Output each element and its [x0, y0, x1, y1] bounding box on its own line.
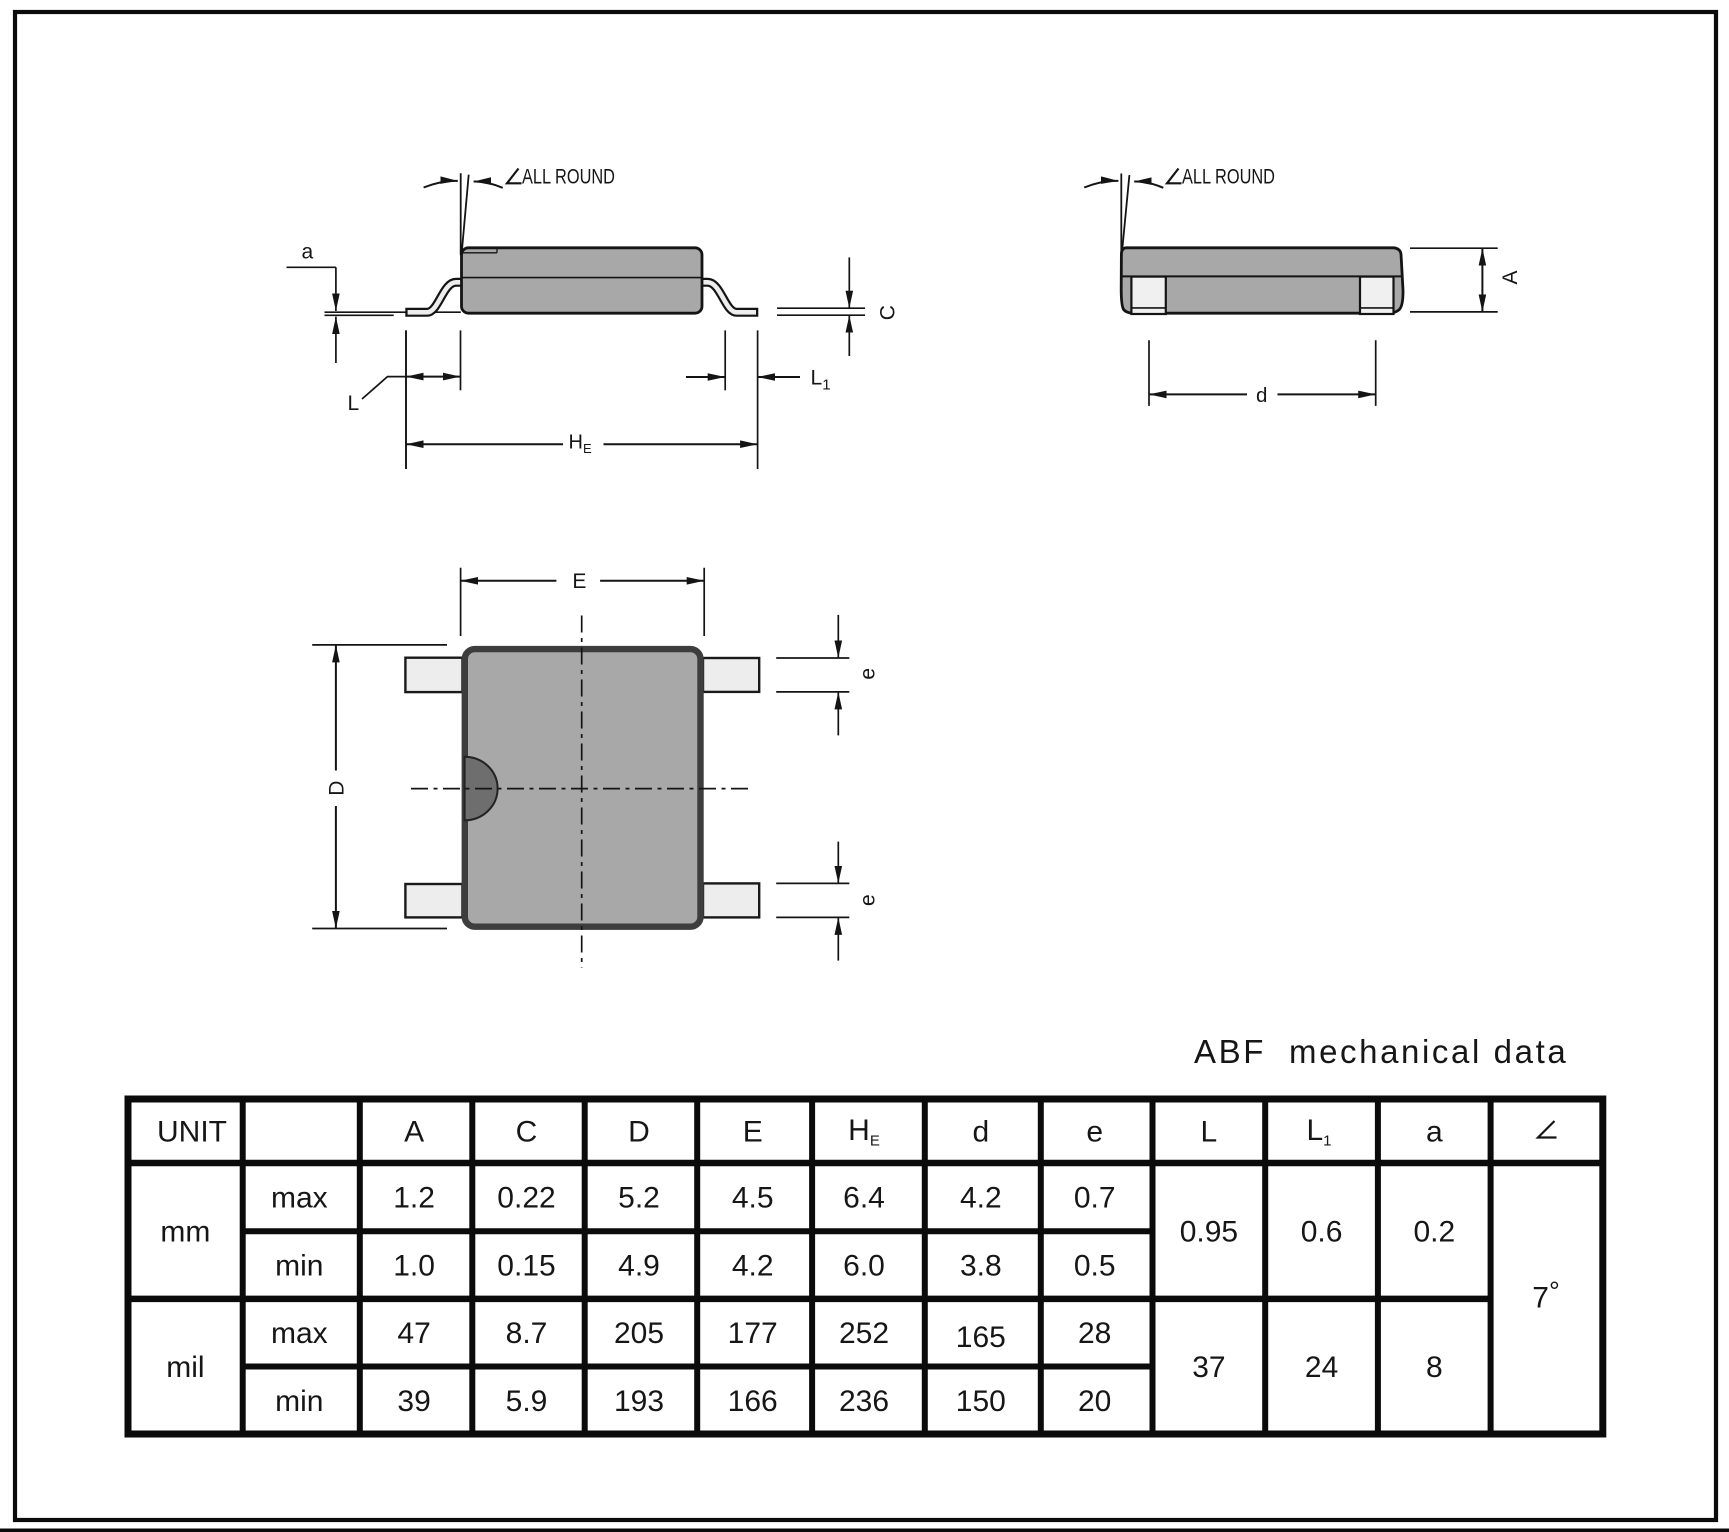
svg-text:0.15: 0.15: [497, 1250, 555, 1283]
svg-text:e: e: [857, 668, 880, 680]
svg-text:UNIT: UNIT: [157, 1116, 227, 1149]
svg-text:ABFmechanical data: ABFmechanical data: [1194, 1033, 1568, 1070]
svg-text:5.2: 5.2: [618, 1182, 660, 1215]
svg-text:6.0: 6.0: [843, 1250, 885, 1283]
svg-text:max: max: [271, 1182, 328, 1215]
svg-text:5.9: 5.9: [506, 1385, 548, 1418]
svg-text:47: 47: [397, 1317, 430, 1350]
svg-text:20: 20: [1078, 1385, 1111, 1418]
svg-text:150: 150: [956, 1385, 1006, 1418]
svg-text:e: e: [1086, 1116, 1103, 1149]
svg-text:4.9: 4.9: [618, 1250, 660, 1283]
svg-text:165: 165: [956, 1321, 1006, 1354]
svg-text:L: L: [1201, 1116, 1218, 1149]
svg-text:1.0: 1.0: [393, 1250, 435, 1283]
svg-text:0.2: 0.2: [1413, 1216, 1455, 1249]
svg-text:6.4: 6.4: [843, 1182, 885, 1215]
svg-text:a: a: [302, 240, 314, 263]
svg-text:e: e: [857, 894, 880, 906]
svg-text:193: 193: [614, 1385, 664, 1418]
svg-text:min: min: [275, 1250, 323, 1283]
svg-text:d: d: [972, 1116, 989, 1149]
svg-text:ALL ROUND: ALL ROUND: [1182, 166, 1275, 189]
svg-text:E: E: [743, 1116, 763, 1149]
svg-text:max: max: [271, 1317, 328, 1350]
svg-text:8.7: 8.7: [506, 1317, 548, 1350]
svg-text:4.2: 4.2: [960, 1182, 1002, 1215]
svg-text:0.95: 0.95: [1180, 1216, 1238, 1249]
svg-text:236: 236: [839, 1385, 889, 1418]
svg-text:min: min: [275, 1385, 323, 1418]
svg-text:A: A: [1499, 270, 1522, 284]
svg-text:E: E: [572, 570, 586, 593]
svg-text:D: D: [628, 1116, 650, 1149]
svg-text:A: A: [404, 1116, 424, 1149]
svg-text:ALL ROUND: ALL ROUND: [522, 166, 615, 189]
svg-text:0.22: 0.22: [497, 1182, 555, 1215]
svg-text:4.5: 4.5: [732, 1182, 774, 1215]
svg-text:37: 37: [1192, 1351, 1225, 1384]
svg-text:3.8: 3.8: [960, 1250, 1002, 1283]
svg-text:8: 8: [1426, 1351, 1443, 1384]
svg-text:252: 252: [839, 1317, 889, 1350]
svg-text:C: C: [877, 305, 900, 320]
svg-text:177: 177: [728, 1317, 778, 1350]
svg-text:39: 39: [397, 1385, 430, 1418]
svg-text:24: 24: [1305, 1351, 1338, 1384]
svg-text:D: D: [325, 781, 348, 796]
svg-text:C: C: [516, 1116, 538, 1149]
svg-text:0.6: 0.6: [1301, 1216, 1343, 1249]
svg-text:d: d: [1256, 384, 1267, 407]
svg-text:205: 205: [614, 1317, 664, 1350]
svg-text:1.2: 1.2: [393, 1182, 435, 1215]
svg-text:28: 28: [1078, 1317, 1111, 1350]
svg-text:166: 166: [728, 1385, 778, 1418]
svg-text:L: L: [348, 392, 360, 415]
svg-text:mil: mil: [166, 1351, 204, 1384]
svg-text:0.5: 0.5: [1074, 1250, 1116, 1283]
svg-text:mm: mm: [160, 1216, 210, 1249]
svg-text:4.2: 4.2: [732, 1250, 774, 1283]
svg-text:a: a: [1426, 1116, 1443, 1149]
svg-text:0.7: 0.7: [1074, 1182, 1116, 1215]
